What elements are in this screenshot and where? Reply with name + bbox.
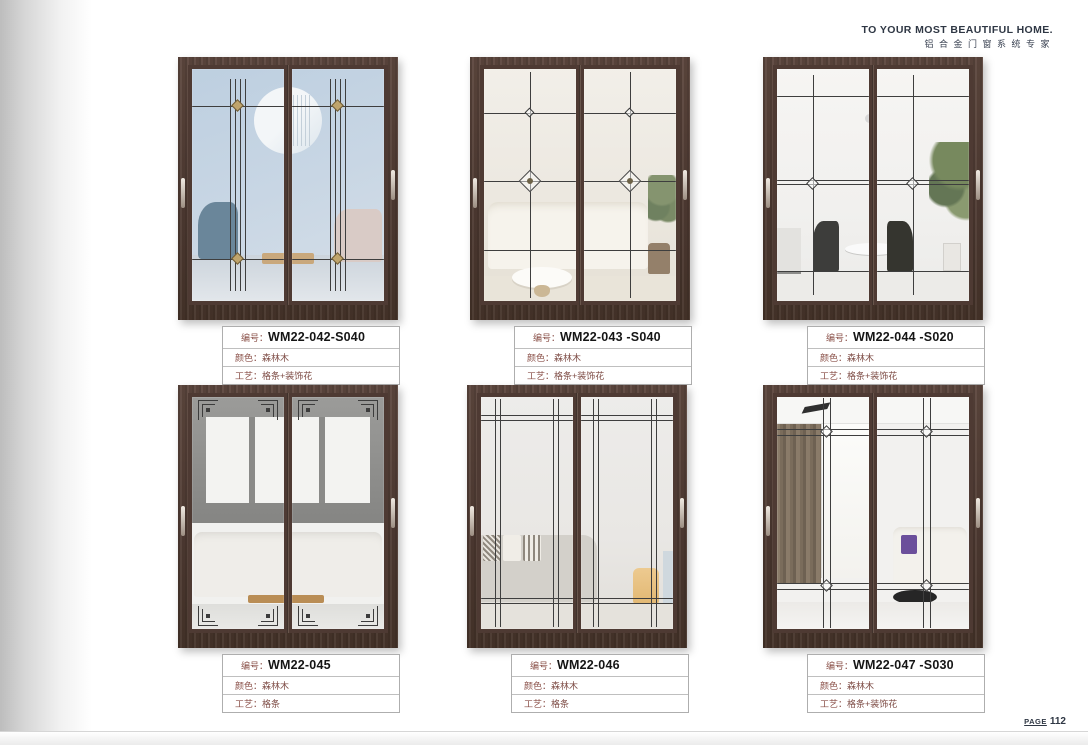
door-panel-frame-right [288,65,388,305]
door-center-stile [872,65,874,305]
door-handle-left [470,506,474,536]
product-color: 森林木 [847,353,874,363]
page-number-value: 112 [1050,716,1066,727]
door-panel-frame-left [477,393,577,633]
door-center-stile [576,393,578,633]
door-glass-scene [480,65,680,305]
product-card: 编号：WM22-044 -S020 颜色：森林木 工艺：格条+装饰花 [763,57,985,320]
product-card: 编号：WM22-046 颜色：森林木 工艺：格条 [467,385,689,648]
craft-field-label: 工艺： [820,371,847,381]
product-code-row: 编号：WM22-047 -S030 [808,655,984,676]
product-craft: 格条 [551,699,569,709]
product-label: 编号：WM22-047 -S030 颜色：森林木 工艺：格条+装饰花 [807,654,985,713]
color-field-label: 颜色： [235,353,262,363]
product-color: 森林木 [847,681,874,691]
product-card: 编号：WM22-047 -S030 颜色：森林木 工艺：格条+装饰花 [763,385,985,648]
product-craft-row: 工艺：格条+装饰花 [515,366,691,384]
product-label: 编号：WM22-043 -S040 颜色：森林木 工艺：格条+装饰花 [514,326,692,385]
door-handle-left [181,178,185,208]
product-color-row: 颜色：森林木 [223,676,399,694]
product-color-row: 颜色：森林木 [512,676,688,694]
product-color: 森林木 [554,353,581,363]
page-gutter-shadow [0,0,92,745]
door-center-stile [287,65,289,305]
product-code: WM22-042-S040 [268,330,365,344]
door-handle-left [181,506,185,536]
door-glass-scene [188,65,388,305]
door-handle-left [766,178,770,208]
product-code: WM22-043 -S040 [560,330,661,344]
door-handle-right [680,498,684,528]
product-label: 编号：WM22-046 颜色：森林木 工艺：格条 [511,654,689,713]
door-panel-frame-right [288,393,388,633]
door-image [178,385,398,648]
product-card: 编号：WM22-043 -S040 颜色：森林木 工艺：格条+装饰花 [470,57,692,320]
door-panel-frame-left [188,393,288,633]
door-image [470,57,690,320]
craft-field-label: 工艺： [235,699,262,709]
color-field-label: 颜色： [527,353,554,363]
product-color-row: 颜色：森林木 [515,348,691,366]
product-code-row: 编号：WM22-044 -S020 [808,327,984,348]
door-glass-scene [773,393,973,633]
product-code-row: 编号：WM22-046 [512,655,688,676]
product-color-row: 颜色：森林木 [808,348,984,366]
craft-field-label: 工艺： [527,371,554,381]
color-field-label: 颜色： [235,681,262,691]
page-bottom-edge [0,731,1088,745]
product-craft: 格条+装饰花 [554,371,604,381]
page-label: PAGE [1024,717,1047,726]
product-craft-row: 工艺：格条+装饰花 [808,694,984,712]
header-slogan-cn: 铝合金门窗系统专家 [924,37,1055,50]
product-card: 编号：WM22-042-S040 颜色：森林木 工艺：格条+装饰花 [178,57,400,320]
product-color-row: 颜色：森林木 [808,676,984,694]
door-image [763,57,983,320]
product-craft-row: 工艺：格条+装饰花 [223,366,399,384]
product-craft: 格条+装饰花 [262,371,312,381]
door-image [763,385,983,648]
door-handle-right [391,170,395,200]
product-craft: 格条 [262,699,280,709]
door-center-stile [287,393,289,633]
product-label: 编号：WM22-045 颜色：森林木 工艺：格条 [222,654,400,713]
product-craft: 格条+装饰花 [847,371,897,381]
door-glass-scene [773,65,973,305]
product-color: 森林木 [262,353,289,363]
door-handle-right [391,498,395,528]
product-color: 森林木 [262,681,289,691]
product-code: WM22-045 [268,658,331,672]
product-craft: 格条+装饰花 [847,699,897,709]
door-glass-scene [188,393,388,633]
door-panel-frame-right [873,393,973,633]
door-panel-frame-right [577,393,677,633]
craft-field-label: 工艺： [820,699,847,709]
product-code-row: 编号：WM22-045 [223,655,399,676]
color-field-label: 颜色： [820,681,847,691]
product-code-row: 编号：WM22-043 -S040 [515,327,691,348]
product-color: 森林木 [551,681,578,691]
product-craft-row: 工艺：格条 [512,694,688,712]
craft-field-label: 工艺： [524,699,551,709]
product-craft-row: 工艺：格条 [223,694,399,712]
product-code: WM22-044 -S020 [853,330,954,344]
door-panel-frame-left [773,393,873,633]
door-handle-left [473,178,477,208]
door-panel-frame-right [580,65,680,305]
craft-field-label: 工艺： [235,371,262,381]
code-field-label: 编号： [241,333,268,343]
door-image [178,57,398,320]
header-slogan-en: TO YOUR MOST BEAUTIFUL HOME. [862,24,1053,36]
door-handle-right [976,170,980,200]
code-field-label: 编号： [530,661,557,671]
door-handle-right [683,170,687,200]
door-panel-frame-left [188,65,288,305]
product-label: 编号：WM22-044 -S020 颜色：森林木 工艺：格条+装饰花 [807,326,985,385]
door-panel-frame-right [873,65,973,305]
door-handle-right [976,498,980,528]
door-center-stile [579,65,581,305]
product-code: WM22-046 [557,658,620,672]
door-handle-left [766,506,770,536]
product-color-row: 颜色：森林木 [223,348,399,366]
code-field-label: 编号： [826,661,853,671]
door-glass-scene [477,393,677,633]
product-label: 编号：WM22-042-S040 颜色：森林木 工艺：格条+装饰花 [222,326,400,385]
code-field-label: 编号： [533,333,560,343]
door-image [467,385,687,648]
color-field-label: 颜色： [820,353,847,363]
code-field-label: 编号： [826,333,853,343]
product-craft-row: 工艺：格条+装饰花 [808,366,984,384]
product-code: WM22-047 -S030 [853,658,954,672]
product-card: 编号：WM22-045 颜色：森林木 工艺：格条 [178,385,400,648]
door-panel-frame-left [773,65,873,305]
page-number: PAGE112 [1024,711,1066,729]
color-field-label: 颜色： [524,681,551,691]
door-center-stile [872,393,874,633]
code-field-label: 编号： [241,661,268,671]
product-code-row: 编号：WM22-042-S040 [223,327,399,348]
catalog-page: TO YOUR MOST BEAUTIFUL HOME. 铝合金门窗系统专家 [0,0,1088,745]
door-panel-frame-left [480,65,580,305]
